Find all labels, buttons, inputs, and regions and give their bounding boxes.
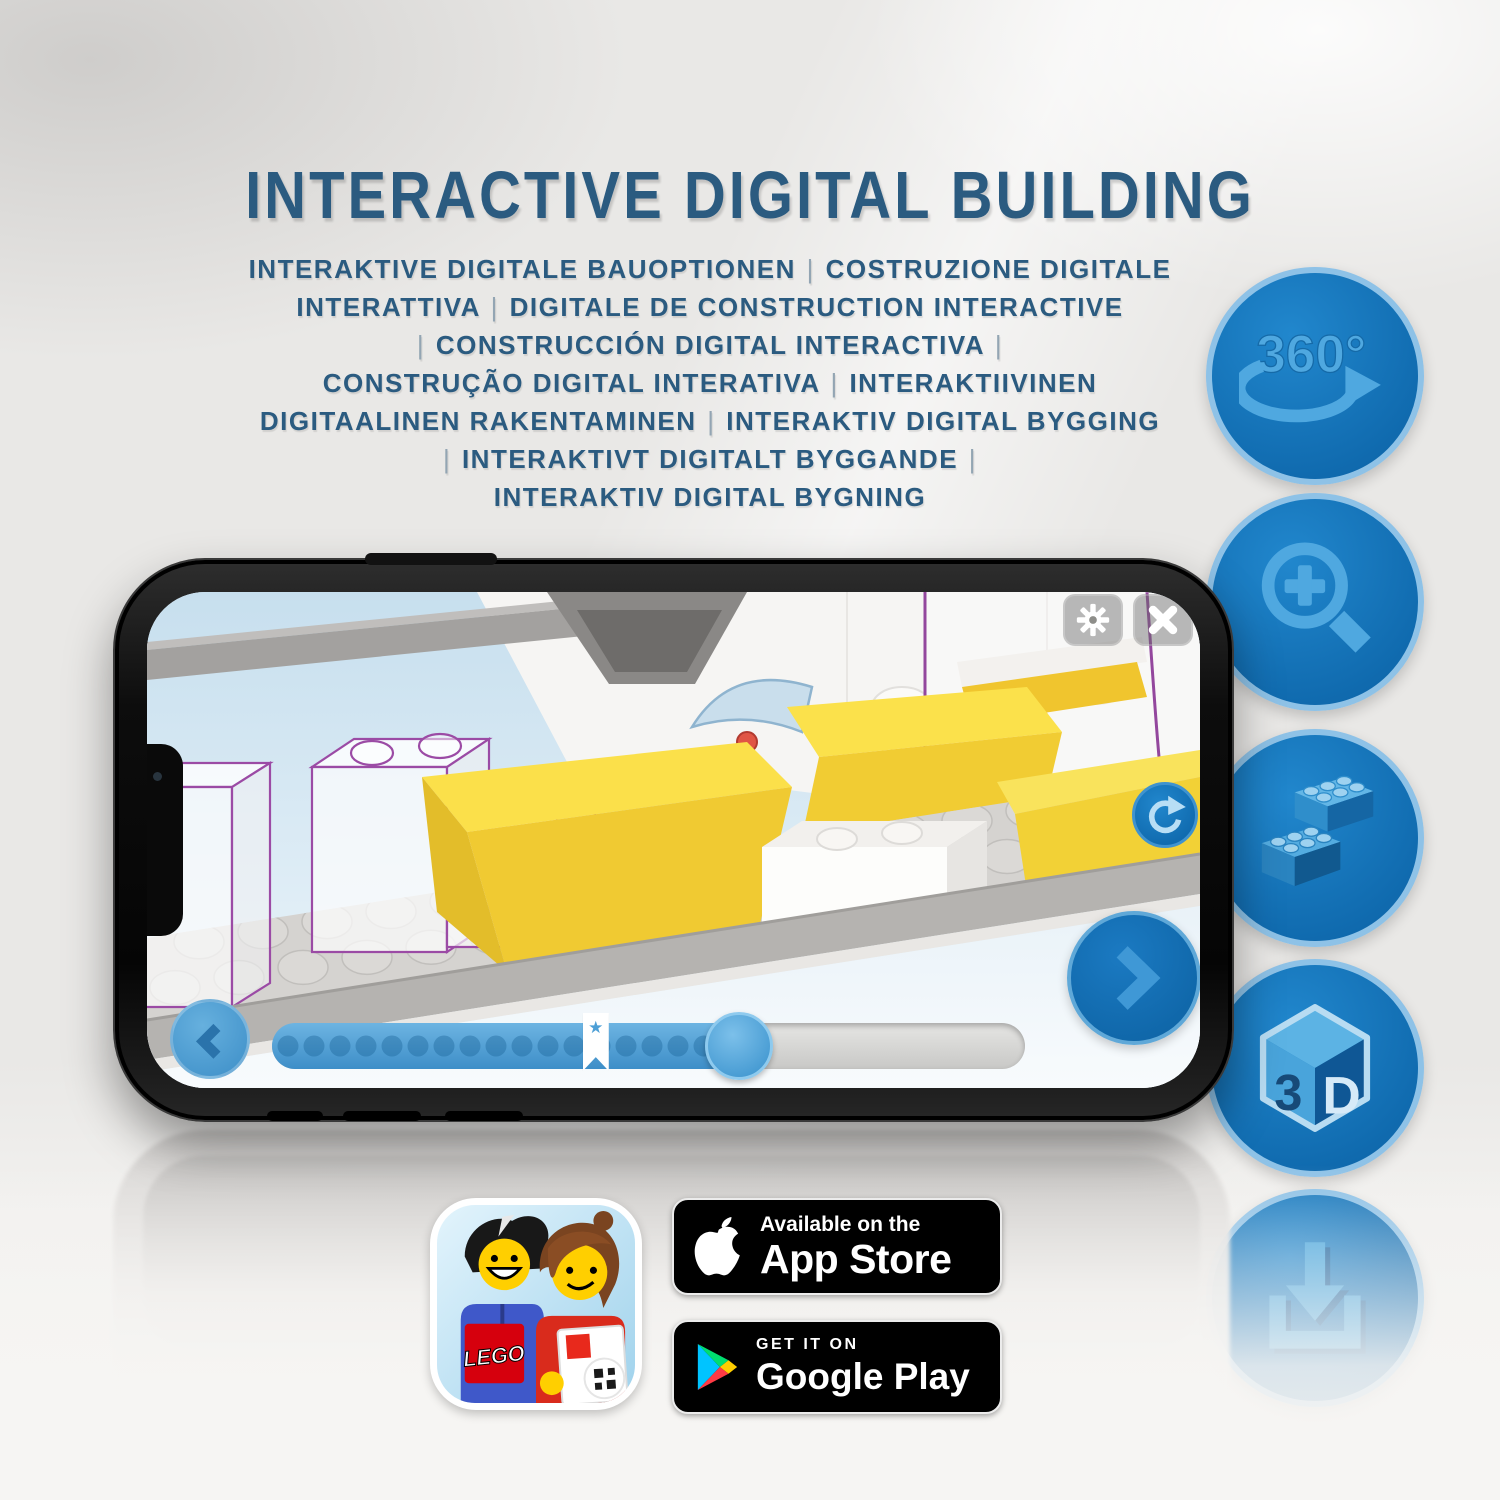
magnifier-plus-glyph [1239, 526, 1391, 678]
previous-step-button[interactable] [170, 999, 250, 1079]
close-button[interactable] [1133, 594, 1193, 646]
rotate-view-button[interactable] [1132, 782, 1198, 848]
progress-dot [460, 1036, 481, 1057]
app-store-name: App Store [760, 1237, 951, 1281]
multilingual-subtitle: INTERAKTIVE DIGITALE BAUOPTIONEN | COSTR… [155, 250, 1265, 516]
svg-text:D: D [1322, 1067, 1360, 1126]
360-glyph: 360° [1239, 300, 1391, 452]
progress-dot [330, 1036, 351, 1057]
progress-dot [668, 1036, 689, 1057]
progress-dot [304, 1036, 325, 1057]
progress-dot [356, 1036, 377, 1057]
next-step-button[interactable] [1067, 911, 1200, 1045]
speaker-slot [267, 1111, 323, 1121]
phone-notch [147, 744, 183, 936]
speaker-slot [445, 1111, 523, 1121]
bricks-icon [1206, 729, 1424, 947]
chevron-right-icon [1084, 928, 1184, 1028]
bottom-brick [1262, 827, 1341, 886]
poster: INTERACTIVE DIGITAL BUILDING INTERAKTIVE… [0, 0, 1500, 1500]
progress-dot [408, 1036, 429, 1057]
subtitle-line: DIGITAALINEN RAKENTAMINEN | INTERAKTIV D… [155, 402, 1265, 440]
google-play-tagline: GET IT ON [756, 1335, 970, 1355]
progress-dot [538, 1036, 559, 1057]
subtitle-line: INTERAKTIV DIGITAL BYGNING [155, 478, 1265, 516]
subtitle-line: CONSTRUÇÃO DIGITAL INTERATIVA | INTERAKT… [155, 364, 1265, 402]
google-play-icon [694, 1342, 740, 1392]
google-play-name: Google Play [756, 1355, 970, 1399]
progress-dot [382, 1036, 403, 1057]
3d-cube-icon: 3 D [1206, 959, 1424, 1177]
progress-dot [564, 1036, 585, 1057]
zoom-in-icon [1206, 493, 1424, 711]
360-rotation-icon: 360° [1206, 267, 1424, 485]
chevron-left-icon [183, 1012, 237, 1066]
gear-icon [1071, 600, 1115, 640]
port-slot [343, 1111, 421, 1121]
subtitle-line: INTERATTIVA | DIGITALE DE CONSTRUCTION I… [155, 288, 1265, 326]
build-progress-slider[interactable]: ★ [272, 1023, 1025, 1069]
page-title: INTERACTIVE DIGITAL BUILDING [0, 157, 1500, 234]
refresh-icon [1141, 791, 1189, 839]
apple-icon [694, 1217, 744, 1277]
subtitle-line: | INTERAKTIVT DIGITALT BYGGANDE | [155, 440, 1265, 478]
subtitle-line: | CONSTRUCCIÓN DIGITAL INTERACTIVA | [155, 326, 1265, 364]
front-camera [153, 772, 162, 781]
app-store-badge[interactable]: Available on the App Store [672, 1198, 1002, 1295]
progress-dot [616, 1036, 637, 1057]
3d-cube-glyph: 3 D [1239, 992, 1391, 1144]
app-screen: ★ [147, 592, 1200, 1088]
settings-button[interactable] [1063, 594, 1123, 646]
svg-text:3: 3 [1274, 1064, 1302, 1121]
volume-button [365, 553, 497, 565]
progress-dot [434, 1036, 455, 1057]
phone: ★ [113, 558, 1234, 1122]
progress-dot [642, 1036, 663, 1057]
app-store-tagline: Available on the [760, 1213, 951, 1237]
subtitle-line: INTERAKTIVE DIGITALE BAUOPTIONEN | COSTR… [155, 250, 1265, 288]
lego-3d-scene [147, 592, 1200, 1088]
progress-dot [486, 1036, 507, 1057]
app-icon-art: LEGO [437, 1205, 635, 1403]
google-play-badge[interactable]: GET IT ON Google Play [672, 1320, 1002, 1414]
lego-builder-app-icon: LEGO [430, 1198, 642, 1410]
lego-bricks-glyph [1239, 762, 1391, 914]
close-icon [1141, 600, 1185, 640]
top-brick [1295, 776, 1374, 831]
progress-dot [512, 1036, 533, 1057]
progress-dot [278, 1036, 299, 1057]
slider-knob[interactable] [705, 1012, 773, 1080]
